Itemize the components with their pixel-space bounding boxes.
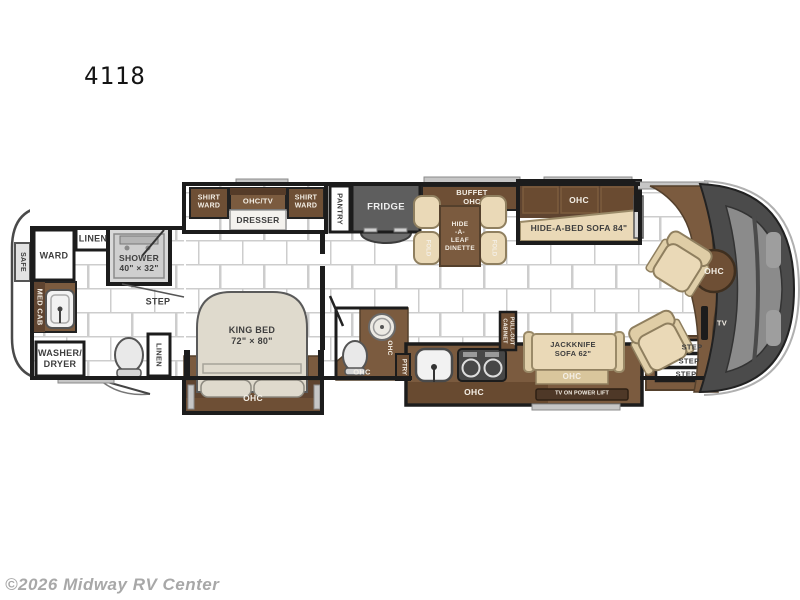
slide-rail <box>188 385 194 409</box>
side-glass <box>766 310 781 346</box>
shower-stall <box>108 228 170 284</box>
refrigerator <box>352 184 420 243</box>
bed-foot-cushion-left <box>201 380 251 397</box>
jackknife-sofa <box>524 332 628 400</box>
watermark: ©2026 Midway RV Center <box>5 575 219 595</box>
tv-lift-bar <box>536 389 628 400</box>
floorplan-drawing <box>0 0 800 600</box>
washer-dryer-box <box>36 342 84 376</box>
dinette-group <box>414 177 522 266</box>
dinette-chair <box>414 196 440 228</box>
linen-cabinet <box>76 228 110 250</box>
pullout-cabinet <box>500 312 516 350</box>
dinette-table <box>440 206 480 266</box>
cooktop <box>458 349 506 381</box>
rear-safe-box <box>15 243 30 281</box>
sofa-ohc-strip <box>536 370 608 384</box>
rear-toilet <box>115 338 143 377</box>
pantry-cabinet <box>330 186 350 232</box>
bed-slide <box>184 292 322 413</box>
bedroom-wall-upper <box>320 230 325 254</box>
wall-stub <box>184 350 190 380</box>
slide-rail <box>314 385 320 409</box>
side-glass <box>766 232 781 268</box>
slide-rail <box>532 404 620 410</box>
vanity-med-cab <box>34 282 76 332</box>
wardrobe <box>34 230 74 280</box>
mid-toilet <box>343 341 367 371</box>
hide-a-bed-group <box>518 177 643 243</box>
bedroom-top-slide <box>184 179 326 232</box>
dresser <box>230 210 286 230</box>
dash-tv <box>701 306 708 340</box>
shirt-wardrobe-right <box>288 188 324 218</box>
wall-stub <box>318 350 324 380</box>
hall-linen-cabinet <box>148 334 170 376</box>
dinette-chair-fold <box>414 232 440 264</box>
bed-foot-cushion-right <box>254 380 304 397</box>
model-number: 4118 <box>84 64 146 88</box>
dinette-chair <box>480 196 506 228</box>
floorplan-page: 4118 SAFE WARD LINEN SHOWER 40" × 32" ME… <box>0 0 800 600</box>
dinette-chair-fold <box>480 232 506 264</box>
shirt-wardrobe-left <box>190 188 228 218</box>
bedroom-pocket-door <box>320 266 325 350</box>
